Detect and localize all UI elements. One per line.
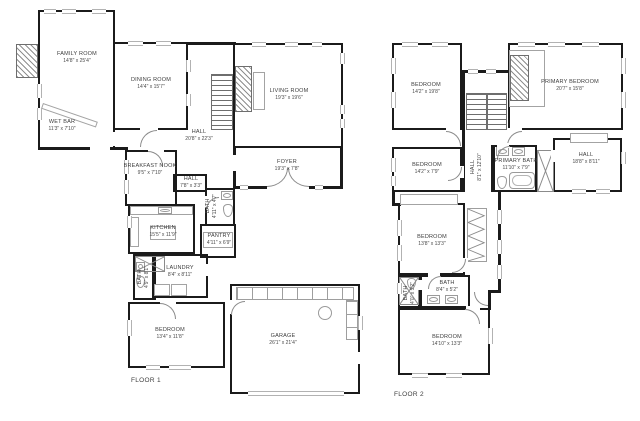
wall-segment [488,290,491,310]
window-marker [572,189,586,194]
label-floor1-bath-hall: BATH4'11" x 4'7" [205,194,219,218]
window-marker [391,176,396,186]
door-arc-icon [507,131,522,146]
sink-icon [221,191,233,200]
label-floor1-pantry: PANTRY4'11" x 6'9" [207,233,231,247]
label-floor2-primary-bedroom: PRIMARY BEDROOM20'7" x 15'8" [541,79,599,93]
door-opening [90,146,110,151]
window-marker [397,245,402,261]
window-marker [412,373,428,378]
window-marker [596,189,610,194]
window-marker [548,42,565,47]
stair-rail [486,93,488,130]
closet-sliding [400,194,458,205]
window-marker [186,60,191,72]
fireplace-icon [16,44,38,78]
window-marker [391,158,396,172]
door-opening [418,280,423,290]
window-marker [127,320,132,336]
window-marker [146,365,160,370]
window-marker [340,53,345,64]
window-marker [468,69,478,74]
window-marker [128,41,143,46]
garage-door-marker [248,391,344,396]
window-marker [285,42,298,47]
cabinet [253,72,265,110]
window-marker [156,41,171,46]
floor2-title: FLOOR 2 [394,391,424,398]
label-floor2-bedroom3: BEDROOM13'8" x 13'3" [417,234,447,248]
door-arc-icon [140,130,157,147]
label-floor2-bath-small: BATH4'0" x 5'2" [403,282,417,304]
floor-plan-canvas: FAMILY ROOM14'8" x 25'4" WET BAR11'3" x … [0,0,640,421]
wall-segment [340,148,343,189]
window-marker [486,69,496,74]
floor1-title: FLOOR 1 [131,377,161,384]
label-floor1-dining: DINING ROOM14'4" x 15'7" [131,77,171,91]
door-opening [358,352,363,364]
wall-segment [490,290,501,293]
label-floor1-living: LIVING ROOM19'3" x 19'6" [270,88,309,102]
window-marker [518,42,535,47]
window-marker [397,283,402,294]
label-floor1-hall: HALL20'8" x 22'3" [185,129,212,143]
sink-icon [445,295,458,304]
window-marker [391,92,396,108]
window-marker [497,265,502,279]
window-marker [186,94,191,106]
window-marker [391,58,396,74]
door-opening [112,132,117,146]
door-arc-icon [446,131,461,146]
label-floor2-primary-bath: PRIMARY BATH11'10" x 7'9" [494,158,537,172]
window-marker [37,84,42,98]
window-marker [497,240,502,254]
window-marker [446,373,462,378]
window-marker [402,42,418,47]
label-floor1-laundry: LAUNDRY8'4" x 8'11" [166,265,194,279]
door-opening [205,264,210,276]
window-marker [124,180,129,194]
wall-segment [188,42,236,45]
window-marker [37,108,42,120]
label-floor1-wetbar: WET BAR11'3" x 7'10" [48,119,75,133]
window-marker [62,9,76,14]
window-marker [621,92,626,108]
label-floor1-foyer: FOYER19'3" x 7'8" [275,159,300,173]
label-floor2-hall: HALL8'1" x 12'10" [470,153,484,180]
garage-cabinets [346,300,358,340]
door-opening [232,155,237,171]
chimney-icon [235,66,252,112]
closet-sliding [570,133,608,143]
fireplace-icon [510,55,529,101]
label-floor2-bedroom2: BEDROOM14'2" x 7'9" [412,162,442,176]
window-marker [488,328,493,344]
window-marker [621,152,626,164]
bifold-closet-icon [467,208,487,262]
window-marker [582,42,599,47]
label-floor1-bath-left: BATH4'9" x 8'1" [137,266,151,288]
label-floor1-hall-small: HALL7'8" x 3'3" [180,176,202,190]
label-floor2-hall-east: HALL18'8" x 8'11" [572,152,599,166]
label-floor2-bedroom4: BEDROOM14'10" x 13'3" [432,334,462,348]
window-marker [432,42,448,47]
garage-cabinets [236,287,354,300]
window-marker [358,316,363,330]
window-marker [340,105,345,114]
dryer-icon [171,284,187,296]
label-floor1-family: FAMILY ROOM14'8" x 25'4" [57,51,97,65]
door-opening [551,150,556,162]
label-floor1-garage: GARAGE26'1" x 21'4" [269,333,296,347]
wall-segment [38,147,128,150]
label-floor1-kitchen: KITCHEN15'5" x 11'9" [149,225,176,239]
water-heater-icon [318,306,332,320]
wall-segment [233,186,267,189]
sink-icon [512,147,525,156]
label-floor1-bedroom: BEDROOM13'4" x 11'8" [155,327,185,341]
stairs-icon [211,74,233,130]
window-marker [315,185,323,190]
sink-icon [158,207,172,214]
window-marker [312,42,322,47]
window-marker [252,42,266,47]
window-marker [340,119,345,128]
window-marker [169,365,191,370]
window-marker [397,220,402,236]
sink-icon [427,295,440,304]
window-marker [92,9,106,14]
window-marker [621,58,626,74]
label-floor2-bath: BATH8'4" x 5'2" [436,280,458,294]
window-marker [127,216,132,228]
window-marker [240,185,248,190]
label-floor1-breakfast-nook: BREAKFAST NOOK9'5" x 7'10" [124,163,177,177]
window-marker [497,210,502,224]
window-marker [44,9,56,14]
washer-icon [154,284,170,296]
door-arc-icon [474,292,488,306]
label-floor2-bedroom1: BEDROOM14'2" x 19'8" [411,82,441,96]
bathtub-icon [509,172,535,189]
